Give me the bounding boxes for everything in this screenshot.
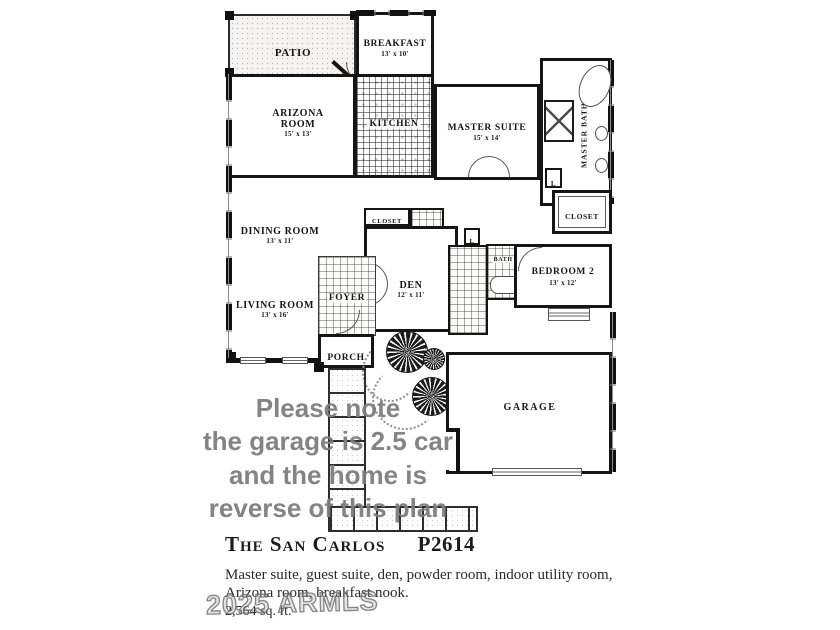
arizona-room-dims: 15' x 13': [248, 122, 348, 138]
sink: [595, 158, 608, 173]
dining-room-dims: 13' x 11': [230, 229, 330, 245]
watermark-note-line: Please note: [196, 392, 460, 425]
kitchen-label: KITCHEN: [356, 108, 432, 130]
plan-code: P2614: [418, 532, 475, 556]
living-window-1: [240, 357, 266, 364]
garage-right-window-wall: [610, 312, 616, 472]
left-exterior-wall: [226, 74, 232, 358]
patio-label: PATIO: [248, 34, 338, 59]
bedroom2-dims: 13' x 12': [518, 271, 608, 287]
linen1-label-text: L: [551, 180, 556, 188]
plan-title: The San Carlos P2614: [225, 532, 475, 557]
garage-label: GARAGE: [470, 390, 590, 413]
patio-label-text: PATIO: [275, 47, 311, 59]
garage-door: [492, 468, 582, 476]
utility-area: [448, 245, 488, 335]
linen-closet-2-label: L: [464, 231, 480, 246]
foyer-label: FOYER: [318, 282, 376, 304]
den-closet-label: CLOSET: [364, 211, 410, 226]
plan-title-text: The San Carlos: [225, 532, 385, 556]
floor-plan: PATIO BREAKFAST 13' x 10' ARIZONA ROOM 1…: [0, 0, 840, 630]
master-closet-label: CLOSET: [554, 204, 610, 221]
den-dims-text: 12' x 11': [397, 291, 424, 299]
porch-label-text: PORCH: [327, 353, 364, 363]
bedroom2-dims-text: 13' x 12': [549, 279, 577, 287]
watermark-note: Please note the garage is 2.5 car and th…: [196, 392, 460, 525]
living-window-2: [282, 357, 308, 364]
breakfast-top-wall: [356, 10, 436, 16]
linen-closet-1-label: L: [545, 172, 562, 188]
plan-description-line1: Master suite, guest suite, den, powder r…: [225, 566, 635, 584]
bush-small: [423, 348, 445, 370]
patio-corner-pier: [225, 11, 234, 20]
master-closet-label-text: CLOSET: [565, 212, 599, 221]
porch-corner-pier: [314, 362, 324, 372]
bedroom2-window-bay: [548, 308, 590, 321]
master-suite-dims: 15' x 14': [438, 126, 536, 142]
toilet: [595, 126, 608, 141]
master-bath-label-text: MASTER BATH: [580, 102, 589, 168]
den-closet-label-text: CLOSET: [372, 218, 402, 225]
watermark-note-line: the garage is 2.5 car: [196, 425, 460, 458]
garage-room: [446, 352, 612, 474]
watermark-note-line: reverse of this plan: [196, 492, 460, 525]
shower: [544, 100, 574, 142]
breakfast-dims-text: 13' x 10': [381, 50, 409, 58]
master-suite-dims-text: 15' x 14': [473, 134, 501, 142]
arizona-room-dims-text: 15' x 13': [284, 130, 312, 138]
dining-room-dims-text: 13' x 11': [266, 237, 293, 245]
armls-watermark: 2025 ARMLS: [206, 586, 379, 622]
kitchen-label-text: KITCHEN: [367, 119, 420, 129]
foyer-label-text: FOYER: [327, 293, 367, 303]
living-room-dims-text: 13' x 16': [261, 311, 289, 319]
garage-label-text: GARAGE: [504, 402, 557, 413]
breakfast-dims: 13' x 10': [358, 42, 432, 58]
living-room-dims: 13' x 16': [228, 303, 322, 319]
watermark-note-line: and the home is: [196, 459, 460, 492]
